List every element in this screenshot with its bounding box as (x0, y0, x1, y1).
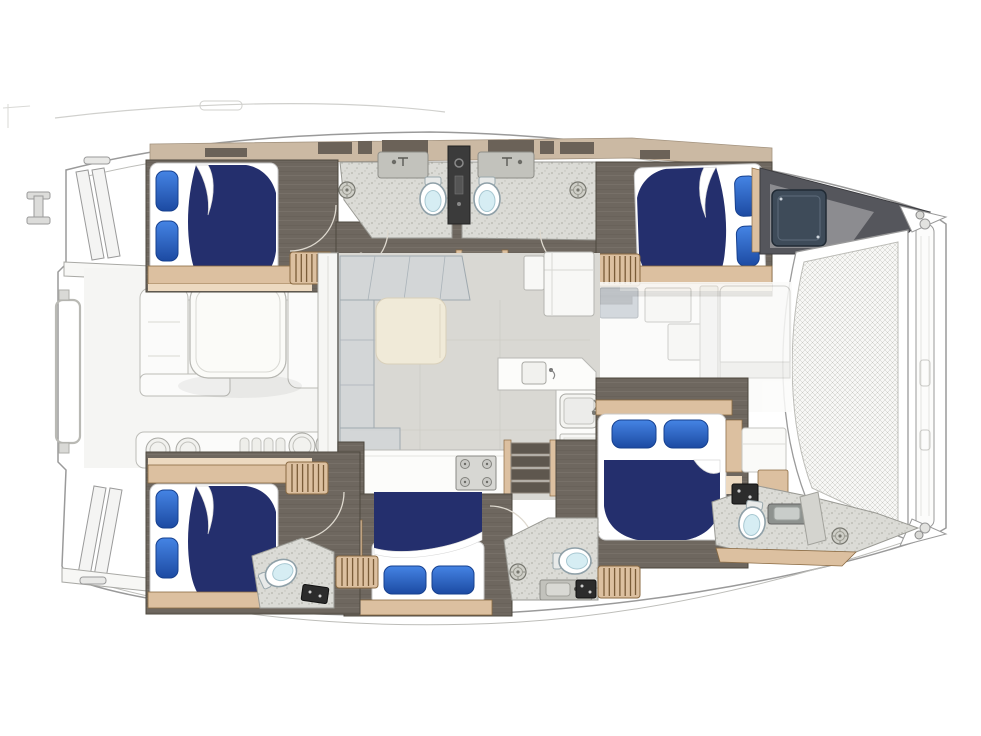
step-trim (148, 266, 312, 284)
pillow-icon (156, 171, 178, 211)
deck-plan-svg (0, 0, 981, 736)
companionway-ladder-icon (286, 462, 328, 494)
companionway-ladder-icon (598, 254, 640, 286)
duvet (604, 460, 720, 540)
double-berth (598, 414, 726, 540)
deck-hatch-icon (488, 140, 534, 153)
shower-drain-icon (510, 564, 526, 580)
pillow-icon (664, 420, 708, 448)
mooring-cleat-icon (27, 192, 50, 224)
deck-plan-canvas (0, 0, 981, 736)
stove-icon (456, 456, 496, 490)
cleat-icon (84, 157, 110, 164)
saloon-table (376, 298, 446, 364)
cockpit-table (190, 282, 286, 378)
companionway-ladder-icon (598, 566, 640, 598)
pillow-icon (156, 538, 178, 578)
companionway-ladder-icon (336, 556, 378, 588)
cleat-icon (80, 577, 106, 584)
deck-hatch-icon (560, 142, 594, 154)
deck-hatch-icon (358, 141, 372, 154)
pillow-icon (384, 566, 426, 594)
pillow-icon (156, 221, 178, 261)
cabin-port-aft (146, 160, 338, 292)
cabin-stbd-aft (146, 452, 378, 614)
shower-column-icon (448, 146, 470, 224)
deck-hatch-icon (772, 190, 826, 246)
deck-hatch-icon (540, 141, 554, 154)
shower-drain-icon (832, 528, 848, 544)
margin-marks (3, 104, 30, 128)
deck-hatch-icon (640, 150, 670, 159)
deck-hatch-icon (205, 148, 247, 157)
deck-hatch-icon (318, 142, 352, 154)
shower-drain-icon (570, 182, 586, 198)
aft-cockpit (84, 268, 344, 468)
step-trim (620, 266, 772, 284)
cabinet (742, 428, 786, 472)
pillow-icon (432, 566, 474, 594)
galley-counter-bottom (362, 450, 512, 494)
cabin-port-fwd (596, 162, 772, 296)
vanity-sink (478, 152, 534, 178)
double-berth (372, 492, 484, 604)
deck-hatch-icon (382, 140, 428, 153)
control-panel-icon (301, 584, 329, 603)
pillow-icon (156, 490, 178, 528)
prep-sink (522, 362, 546, 384)
step-trim (360, 600, 492, 615)
hardtop-edge-line (55, 104, 445, 118)
control-panel-icon (576, 580, 596, 598)
pillow-icon (612, 420, 656, 448)
bed-header-trim (596, 400, 732, 415)
shower-drain-icon (339, 182, 355, 198)
galley-island (498, 358, 596, 390)
